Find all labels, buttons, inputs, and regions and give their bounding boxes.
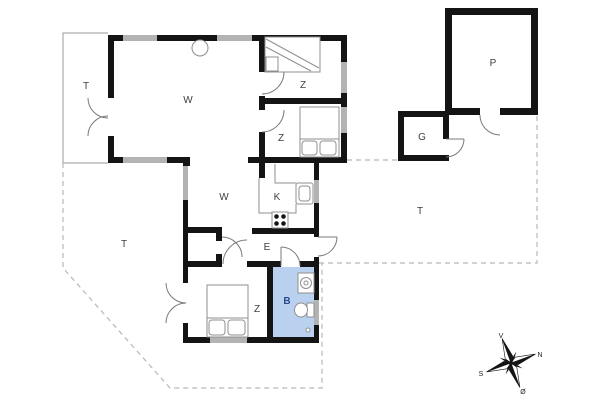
window-icon [183,166,188,200]
floor-drain-icon [306,328,310,332]
cooktop-icon [272,212,288,228]
door-arc [88,98,108,118]
room-label-dining: W [219,192,229,203]
compass-label-west: V [499,333,504,340]
window-icon [341,107,347,133]
floor-plan-page: T W Z Z W K E Z B T T P G [0,0,600,400]
toilet-icon [295,303,315,317]
door-arc [88,116,108,136]
room-label-living: W [183,95,193,106]
bathroom-sink-icon [298,273,314,293]
room-label-garage: G [418,132,426,143]
window-icon [314,300,319,325]
entrance-door-arc [318,237,337,256]
door-arc [281,247,300,266]
compass-label-east: Ø [520,389,526,396]
terrace-outline [63,33,108,163]
bunk-bed [265,37,320,72]
room-label-kitchen: K [274,192,281,203]
door-arc [262,72,284,94]
room-label-bedroom1: Z [300,80,306,91]
compass-star [478,330,545,397]
door-arc [262,110,284,132]
window-icon [123,35,157,41]
kitchen-sink-icon [296,183,313,204]
door-arc [166,303,186,323]
walls [108,8,538,343]
window-icon [123,157,167,163]
double-bed [207,285,248,337]
room-label-parking: P [490,58,497,69]
room-label-bath: B [283,296,290,307]
double-bed [300,107,339,157]
room-label-terrace2: T [121,239,127,250]
window-icon [217,35,252,41]
door-arc [223,240,247,264]
window-icon [341,62,347,93]
room-label-bedroom3: Z [254,304,260,315]
stove-circle-icon [192,40,208,56]
room-label-terrace1: T [83,81,89,92]
room-label-terrace3: T [417,206,423,217]
door-arc [166,283,186,303]
room-label-bedroom2: Z [278,133,284,144]
compass-rose: V N S Ø [478,330,545,397]
dashed-boundary-right [319,115,537,263]
door-arc [446,139,464,157]
window-icon [314,180,319,203]
compass-label-south: S [479,371,484,378]
floor-plan-svg: T W Z Z W K E Z B T T P G [0,0,600,400]
window-icon [210,337,247,343]
door-arc [480,115,500,135]
room-label-entrance: E [264,242,271,253]
compass-label-north: N [537,352,542,359]
